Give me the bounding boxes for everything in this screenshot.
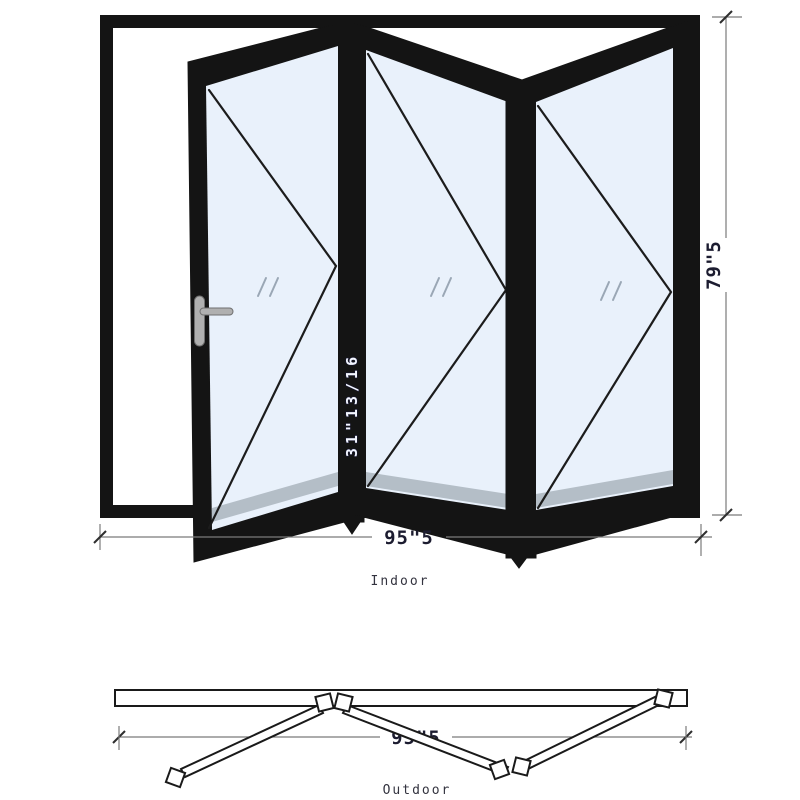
indoor-label: Indoor [371,574,430,589]
elevation-height-label: 79"5 [703,240,725,290]
plan-track [115,690,687,706]
hinge-block [654,689,672,707]
panel-width-dimension: 31"13/16 [343,353,361,457]
door-panel-3 [522,20,690,558]
panel-2-glass [366,50,508,510]
plan-panels [181,695,663,777]
hinge-block [334,693,352,711]
plan-view: 95"5 Outdoor [113,689,692,798]
hinge-block [512,757,530,775]
elevation-width-label: 95"5 [384,527,434,549]
elevation-view: 31"13/16 95"5 79"5 Indoor [94,11,742,589]
bifold-door-diagram: 31"13/16 95"5 79"5 Indoor [0,0,800,800]
hinge-block [315,693,333,711]
door-panel-1 [188,20,352,562]
panel-3-glass [536,48,673,510]
panel-1-glass [206,46,338,530]
elevation-height-dimension: 79"5 [703,11,742,521]
outdoor-label: Outdoor [383,783,452,798]
door-panel-2 [352,22,522,558]
frame-left-jamb [100,15,113,518]
plan-panel-2 [343,705,508,775]
plan-panel-1 [181,705,323,777]
frame-head [100,15,700,28]
